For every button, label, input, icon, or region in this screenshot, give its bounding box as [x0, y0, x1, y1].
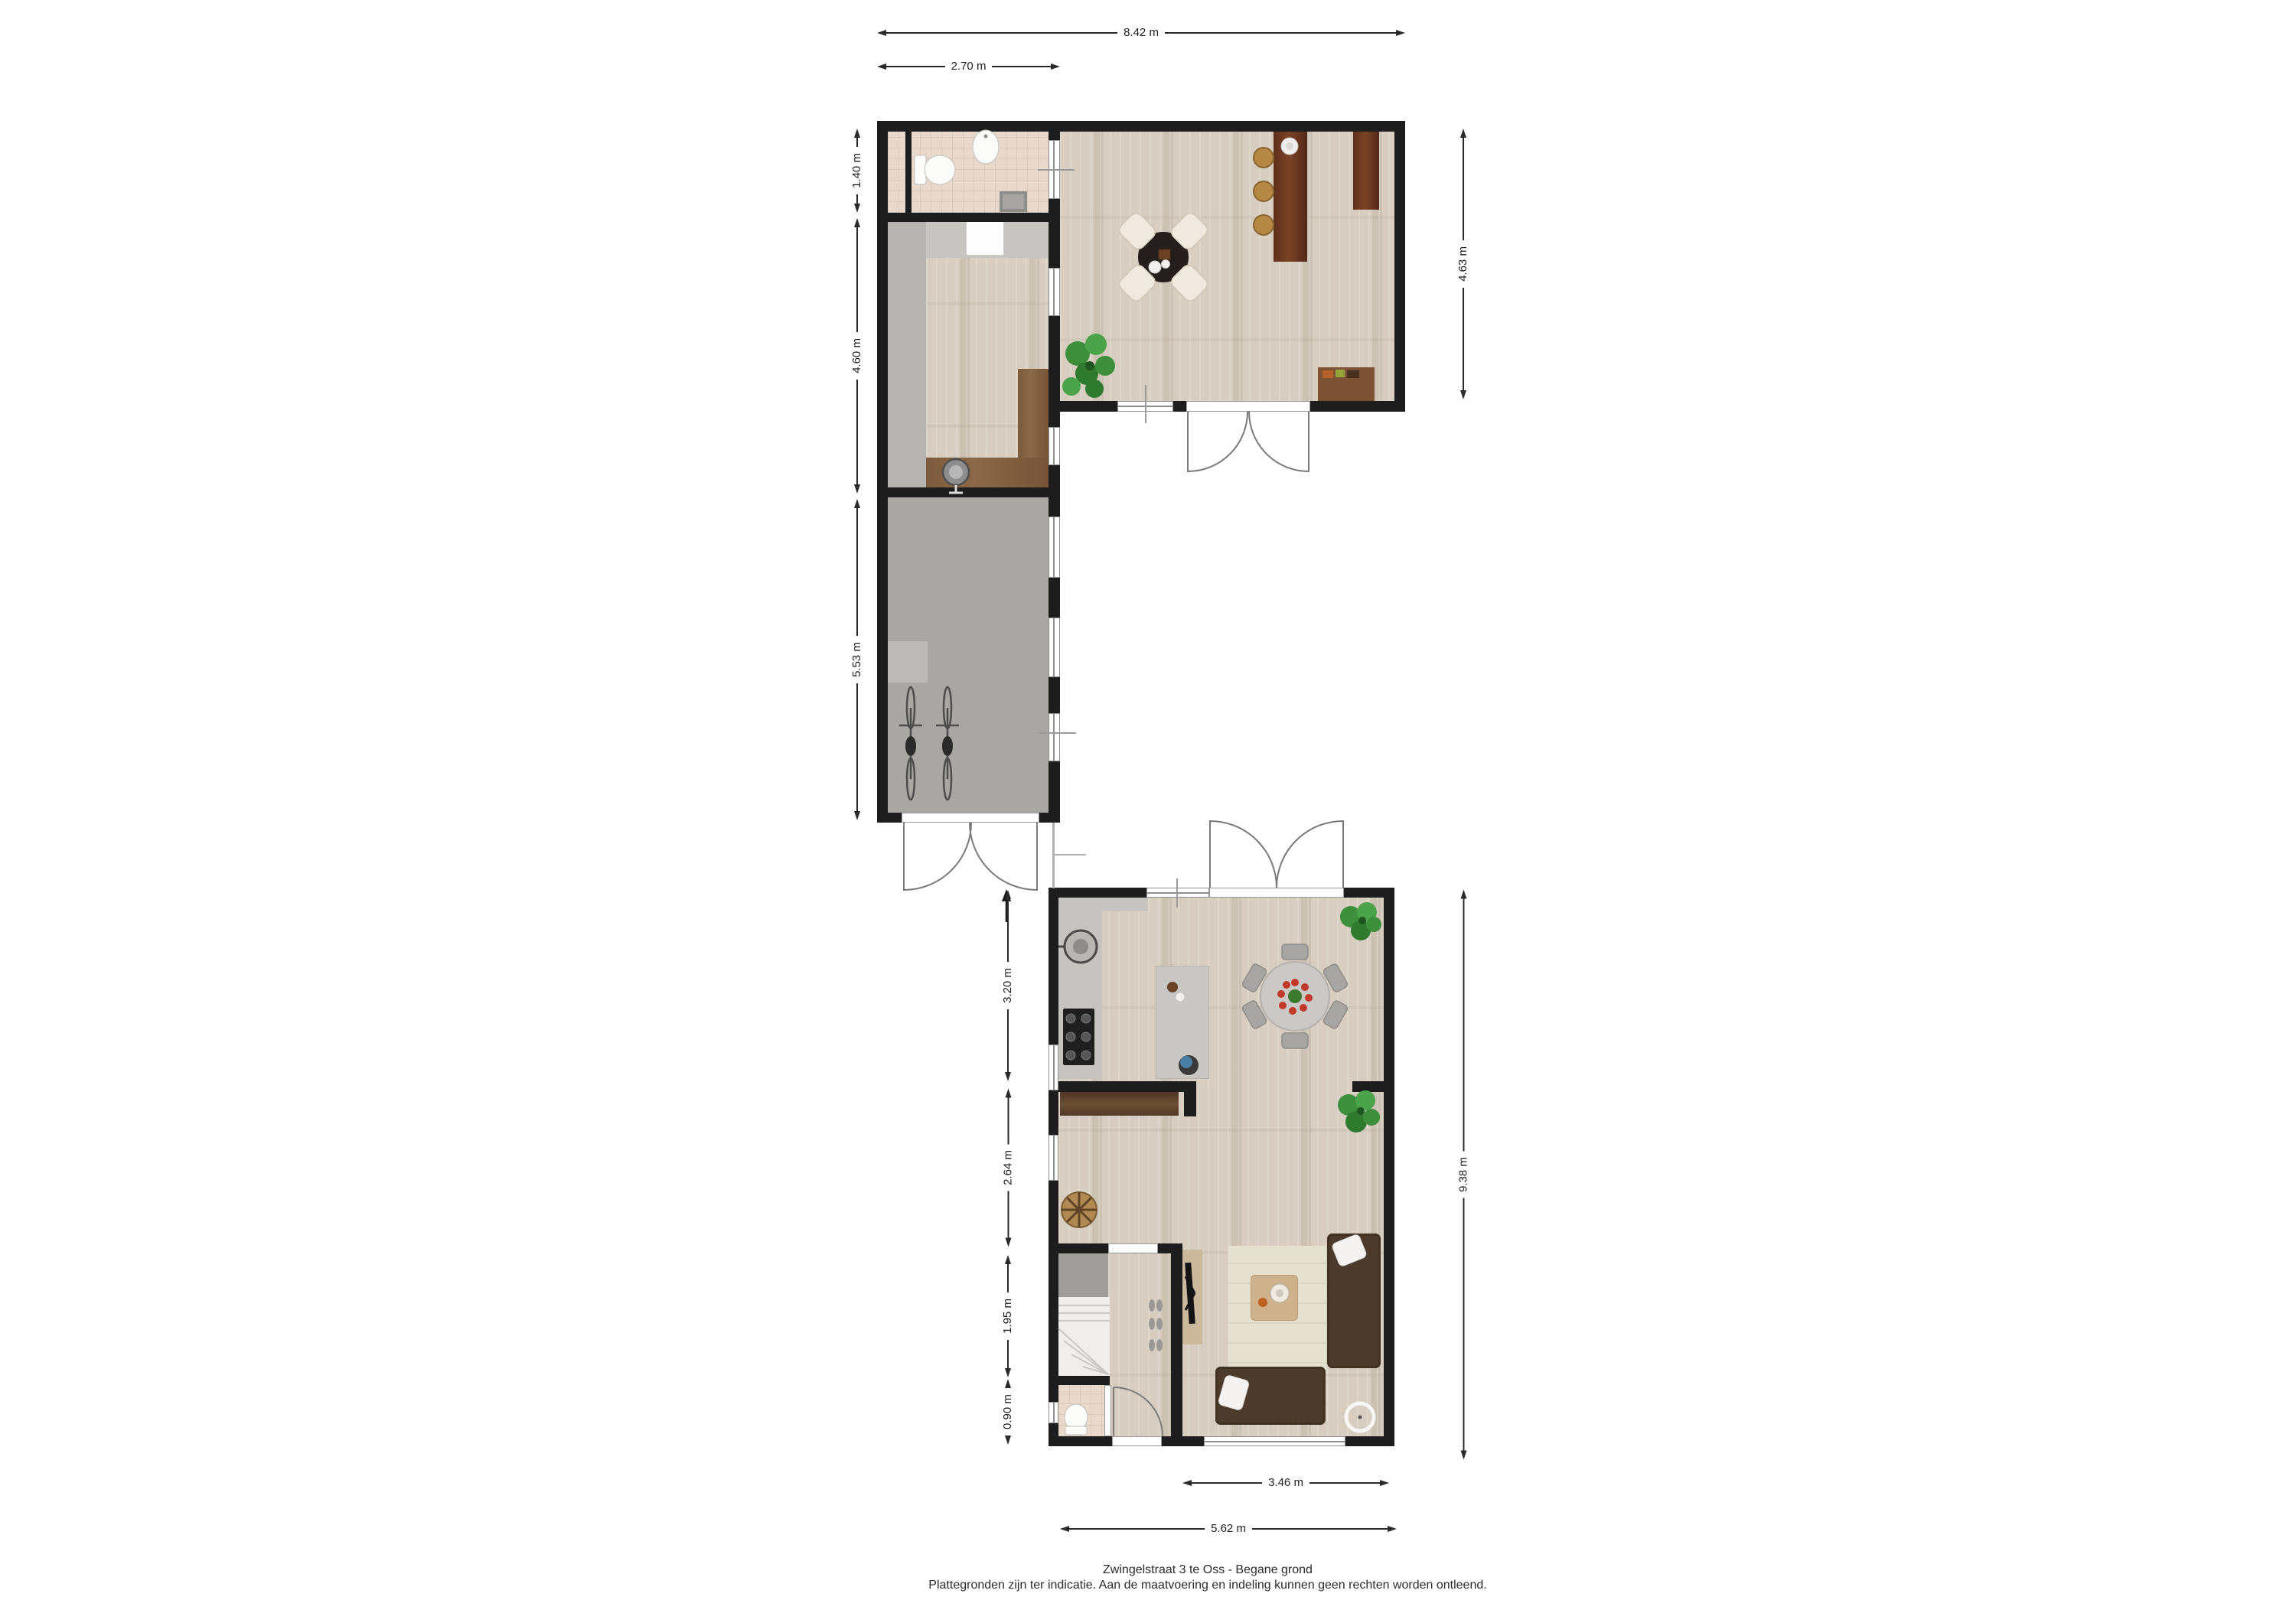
arrowhead-left-icon — [854, 484, 860, 494]
arrowhead-left-icon — [877, 64, 886, 70]
arrowhead-left-icon — [1060, 1526, 1069, 1532]
dim-label: 1.95 m — [1000, 1292, 1016, 1340]
window — [1049, 268, 1060, 316]
dim-line — [856, 380, 858, 484]
dim-label: 5.62 m — [1205, 1521, 1252, 1537]
dim-line — [1463, 288, 1464, 390]
wall — [1049, 677, 1060, 713]
arrowhead-right-icon — [1388, 1526, 1397, 1532]
entry-door-swing — [1210, 821, 1343, 888]
kitchen-island — [1156, 966, 1209, 1079]
dim-line — [886, 32, 1117, 34]
dim-line — [1463, 1198, 1465, 1451]
floor-plan: 8.42 m 2.70 m 1.40 m 4.60 m 5.53 m 4.63 … — [0, 0, 2296, 1623]
window — [1204, 1436, 1345, 1446]
arrowhead-left-icon — [1006, 1238, 1012, 1247]
wall — [1184, 1081, 1196, 1116]
caption: Zwingelstraat 3 te Oss - Begane grond Pl… — [672, 1563, 1743, 1593]
arrowhead-right-icon — [1461, 889, 1467, 898]
plan-title: Zwingelstraat 3 te Oss - Begane grond — [672, 1563, 1743, 1578]
dining-table — [1138, 232, 1189, 282]
arrowhead-left-icon — [1005, 1368, 1011, 1377]
wall — [877, 121, 888, 823]
dim-garage-height: 5.53 m — [850, 499, 865, 820]
dim-label: 4.60 m — [850, 332, 865, 380]
arrowhead-right-icon — [1460, 129, 1466, 138]
window — [1049, 1135, 1058, 1181]
stairs — [1058, 1297, 1110, 1376]
dim-line — [1007, 1009, 1009, 1072]
wall — [1049, 1243, 1108, 1253]
window — [1049, 713, 1060, 761]
wall — [1171, 1243, 1182, 1436]
toilet-room-floor — [1058, 1385, 1104, 1436]
wall — [1049, 465, 1060, 517]
dim-label: 2.64 m — [1001, 1144, 1016, 1191]
arrowhead-right-icon — [1005, 890, 1011, 899]
glass-inner-door — [1108, 1243, 1158, 1253]
dim-line — [1007, 899, 1009, 962]
wall — [1352, 1081, 1384, 1092]
wall — [1049, 199, 1060, 268]
arrowhead-right-icon — [1006, 1088, 1012, 1097]
dim-line — [992, 66, 1051, 67]
window-tick — [1039, 732, 1076, 734]
wall — [1162, 1436, 1204, 1446]
wall — [877, 121, 1405, 132]
dim-hall-lower-height: 1.95 m — [1000, 1255, 1016, 1377]
dim-line — [1007, 1264, 1009, 1292]
window-tick — [1176, 878, 1178, 908]
arrowhead-left-icon — [1005, 1436, 1011, 1445]
wall — [1058, 1376, 1110, 1385]
utility-l-counter-horizontal — [926, 458, 1049, 487]
dim-line — [1192, 1482, 1262, 1484]
dim-line — [856, 683, 858, 811]
arrowhead-right-icon — [1380, 1480, 1389, 1486]
fence-tick — [1052, 854, 1086, 855]
window — [1049, 1402, 1058, 1423]
arrowhead-right-icon — [1005, 1255, 1011, 1264]
arrowhead-left-icon — [854, 811, 860, 820]
arrowhead-right-icon — [1396, 30, 1405, 36]
dim-lower-right-height: 9.38 m — [1456, 890, 1472, 1460]
dim-sitting-height: 2.64 m — [1001, 1089, 1016, 1247]
window — [1146, 888, 1209, 898]
fence-line — [1052, 823, 1055, 888]
arrowhead-right-icon — [854, 499, 860, 508]
dim-line — [1008, 1191, 1009, 1238]
dim-label: 0.90 m — [1000, 1388, 1016, 1436]
wall — [1345, 1436, 1394, 1446]
wall — [1049, 1436, 1112, 1446]
garage-floor-patch — [888, 641, 928, 683]
window-tick — [1038, 169, 1075, 171]
garage-door-swing — [904, 823, 1037, 890]
entry-double-door — [1209, 888, 1344, 898]
dim-lower-total-width: 5.62 m — [1060, 1521, 1397, 1537]
dim-line — [1008, 1097, 1009, 1144]
dim-line — [1007, 1340, 1009, 1368]
coffee-table — [1251, 1275, 1298, 1321]
dim-line — [1463, 138, 1464, 240]
dining-room-floor — [1060, 132, 1394, 401]
plan-disclaimer: Plattegronden zijn ter indicatie. Aan de… — [672, 1578, 1743, 1593]
wall — [1049, 888, 1148, 898]
dim-label: 1.40 m — [850, 147, 865, 194]
dim-label: 3.46 m — [1262, 1475, 1309, 1491]
side-counter — [1353, 129, 1379, 210]
garage-door — [902, 813, 1039, 823]
sofa-bottom — [1215, 1367, 1326, 1425]
entry-hall-floor — [1058, 1253, 1108, 1297]
dim-living-width: 3.46 m — [1182, 1475, 1389, 1491]
kitchen-counter-top-strip — [1102, 898, 1148, 911]
washing-machine — [966, 220, 1004, 256]
arrowhead-left-icon — [1460, 390, 1466, 399]
dim-label: 5.53 m — [850, 636, 865, 683]
wall — [888, 487, 1049, 497]
dim-bathroom-height: 1.40 m — [850, 129, 865, 213]
wall — [1049, 316, 1060, 401]
wall — [1049, 578, 1060, 618]
wall — [888, 213, 1049, 222]
dim-line — [856, 194, 858, 204]
wall — [1173, 401, 1186, 412]
sofa-right — [1327, 1234, 1381, 1368]
dim-line — [886, 66, 945, 67]
wall — [1049, 412, 1060, 427]
window-tick — [1145, 385, 1146, 423]
arrowhead-right-icon — [1051, 64, 1060, 70]
dim-label: 3.20 m — [1000, 962, 1016, 1009]
patio-door-swing — [1188, 412, 1309, 471]
wall — [1049, 888, 1058, 1045]
dim-line — [1069, 1528, 1205, 1530]
hob — [1063, 1009, 1094, 1065]
arrowhead-left-icon — [877, 30, 886, 36]
wall — [1039, 813, 1060, 823]
window — [1049, 427, 1060, 465]
arrowhead-left-icon — [1461, 1451, 1467, 1460]
kitchen-round-table — [1260, 961, 1330, 1031]
dim-line — [856, 508, 858, 636]
dim-upper-right-height: 4.63 m — [1456, 129, 1471, 399]
dim-line — [856, 227, 858, 332]
toilet-door — [1104, 1385, 1111, 1436]
dim-label: 2.70 m — [945, 59, 993, 74]
wall — [1049, 1181, 1058, 1402]
dim-top-total: 8.42 m — [877, 25, 1405, 41]
front-door — [1112, 1436, 1162, 1446]
arrowhead-right-icon — [854, 129, 860, 138]
window — [1049, 618, 1060, 677]
arrowhead-left-icon — [1182, 1480, 1192, 1486]
dim-toilet-height: 0.90 m — [1000, 1383, 1016, 1445]
window — [1049, 517, 1060, 578]
arrowhead-right-icon — [854, 218, 860, 227]
dim-line — [1309, 1482, 1380, 1484]
wall — [1394, 121, 1405, 412]
window — [1049, 1045, 1058, 1090]
utility-hall-side-strip — [888, 222, 926, 487]
bar-counter — [1274, 126, 1307, 262]
sideboard-item-green — [1336, 370, 1345, 377]
wall — [1049, 401, 1117, 412]
arrowhead-right-icon — [1005, 1379, 1011, 1388]
arrowhead-left-icon — [1005, 1072, 1011, 1081]
dim-line — [1165, 32, 1396, 34]
wall — [1058, 1081, 1196, 1092]
wall — [1310, 401, 1405, 412]
sideboard-item-orange — [1322, 370, 1333, 378]
dim-kitchen-height: 3.20 m — [1000, 890, 1016, 1081]
dim-label: 4.63 m — [1456, 240, 1471, 288]
bath-mat — [1000, 191, 1027, 212]
dim-label: 8.42 m — [1117, 25, 1165, 41]
wall — [877, 813, 902, 823]
wall — [1384, 888, 1394, 1446]
dim-line — [1463, 898, 1465, 1151]
wall — [1049, 132, 1060, 140]
wall — [905, 132, 912, 213]
dim-line — [1252, 1528, 1388, 1530]
arrowhead-left-icon — [854, 204, 860, 213]
tv-unit — [1182, 1250, 1202, 1344]
living-sideboard — [1060, 1092, 1179, 1116]
dim-hall-height: 4.60 m — [850, 218, 865, 494]
dim-top-wing: 2.70 m — [877, 59, 1060, 74]
wall — [1049, 1090, 1058, 1135]
dim-label: 9.38 m — [1456, 1151, 1472, 1198]
dim-line — [856, 138, 858, 147]
patio-door — [1186, 401, 1310, 412]
sideboard-item-dark — [1347, 370, 1359, 378]
